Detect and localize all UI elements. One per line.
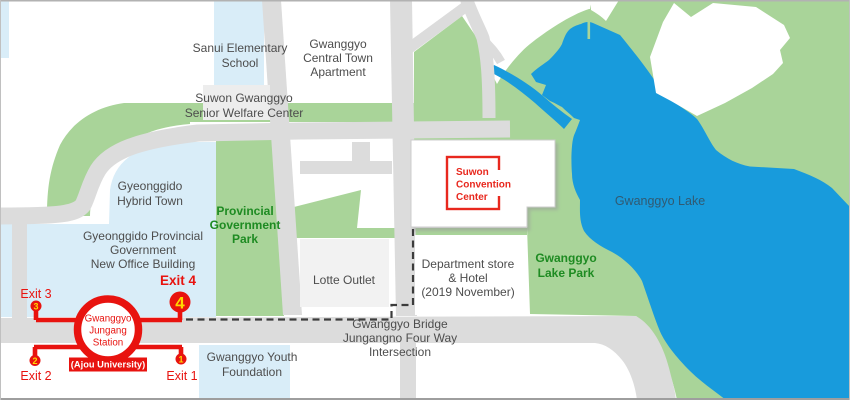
svg-text:Gwanggyo: Gwanggyo xyxy=(309,37,367,51)
svg-text:Suwon Gwanggyo: Suwon Gwanggyo xyxy=(195,91,293,105)
svg-text:Exit 4: Exit 4 xyxy=(160,273,197,288)
svg-text:Government: Government xyxy=(110,243,177,257)
svg-text:Sanui Elementary: Sanui Elementary xyxy=(193,41,288,55)
svg-text:Gwanggyo Lake: Gwanggyo Lake xyxy=(615,194,705,208)
svg-text:4: 4 xyxy=(175,294,185,313)
svg-text:Central Town: Central Town xyxy=(303,51,373,65)
svg-text:New Office Building: New Office Building xyxy=(91,257,196,271)
svg-text:Station: Station xyxy=(93,338,124,349)
svg-text:Exit 3: Exit 3 xyxy=(20,287,51,301)
svg-text:Gyeonggido Provincial: Gyeonggido Provincial xyxy=(83,229,203,243)
svg-text:Gwanggyo Youth: Gwanggyo Youth xyxy=(207,350,298,364)
svg-text:(Ajou University): (Ajou University) xyxy=(71,360,145,370)
svg-text:School: School xyxy=(222,56,259,70)
svg-text:Center: Center xyxy=(456,192,488,203)
svg-text:(2019 November): (2019 November) xyxy=(421,285,514,299)
svg-text:& Hotel: & Hotel xyxy=(448,271,487,285)
svg-text:Lotte Outlet: Lotte Outlet xyxy=(313,273,376,287)
svg-text:3: 3 xyxy=(33,302,38,312)
svg-text:Foundation: Foundation xyxy=(222,365,282,379)
svg-text:Jungang: Jungang xyxy=(89,326,127,337)
svg-text:Gwanggyo Bridge: Gwanggyo Bridge xyxy=(352,317,448,331)
svg-text:2: 2 xyxy=(32,356,37,366)
svg-text:Department store: Department store xyxy=(422,257,515,271)
svg-text:1: 1 xyxy=(178,355,183,365)
svg-text:Government: Government xyxy=(210,218,281,232)
svg-text:Convention: Convention xyxy=(456,180,511,191)
svg-text:Gwanggyo: Gwanggyo xyxy=(85,314,132,325)
svg-text:Lake Park: Lake Park xyxy=(538,266,595,280)
svg-text:Intersection: Intersection xyxy=(369,345,431,359)
svg-text:Jungangno Four Way: Jungangno Four Way xyxy=(343,331,457,345)
svg-text:Hybrid Town: Hybrid Town xyxy=(117,194,183,208)
svg-text:Senior Welfare Center: Senior Welfare Center xyxy=(185,106,304,120)
svg-text:Apartment: Apartment xyxy=(310,65,366,79)
svg-text:Gyeonggido: Gyeonggido xyxy=(118,179,183,193)
svg-text:Exit 2: Exit 2 xyxy=(20,369,51,383)
svg-text:Exit 1: Exit 1 xyxy=(166,369,197,383)
svg-text:Gwanggyo: Gwanggyo xyxy=(535,251,596,265)
svg-text:Suwon: Suwon xyxy=(456,167,489,178)
svg-text:Park: Park xyxy=(232,232,258,246)
svg-text:Provincial: Provincial xyxy=(216,204,273,218)
